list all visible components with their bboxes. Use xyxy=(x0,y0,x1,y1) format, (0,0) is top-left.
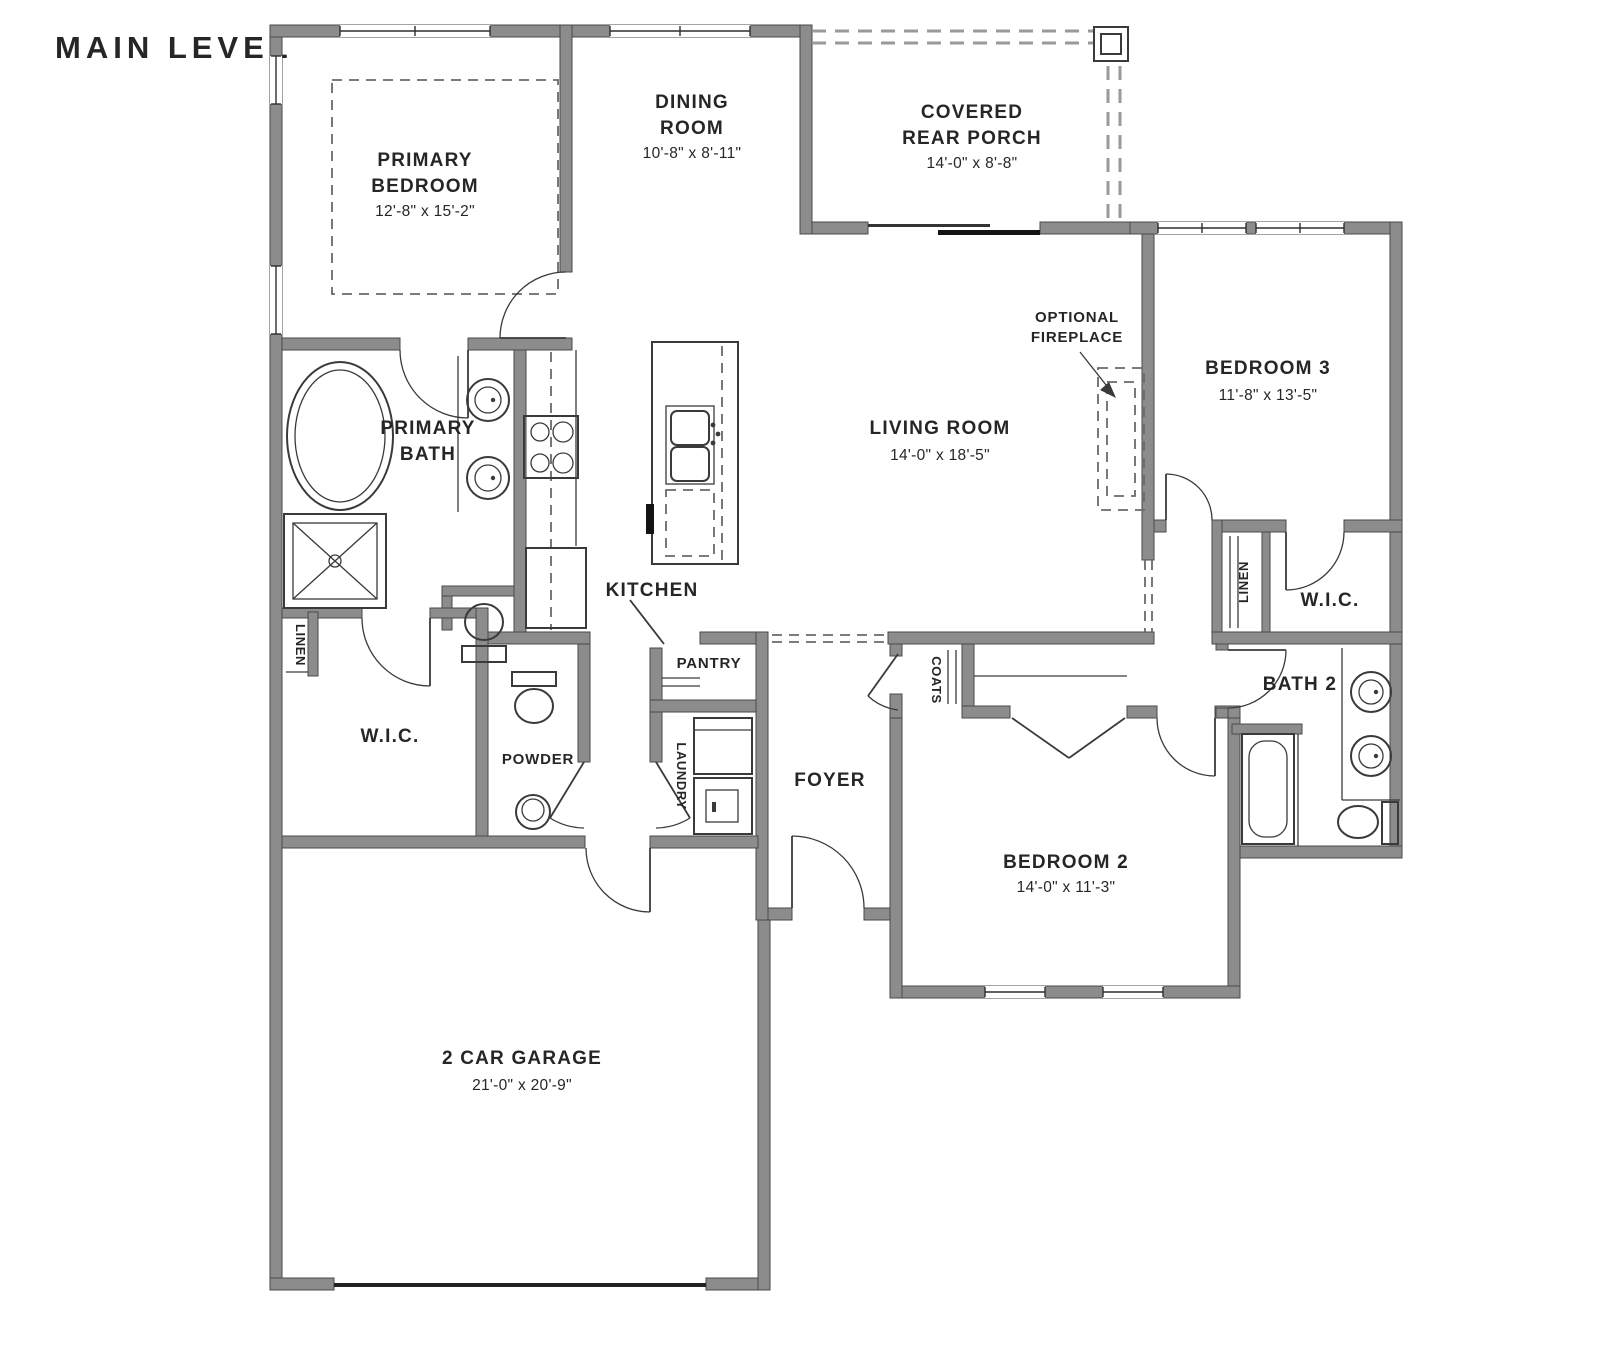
garage-door-line xyxy=(334,1283,706,1287)
soaking-tub xyxy=(287,362,393,510)
toilet-tank xyxy=(512,672,556,686)
bedroom2-label: BEDROOM 2 xyxy=(1003,852,1129,873)
floor-plan-page: MAIN LEVEL xyxy=(0,0,1600,1348)
shower xyxy=(284,514,386,608)
bedroom3-label: BEDROOM 3 xyxy=(1205,358,1331,379)
porch-post xyxy=(1094,27,1128,61)
kitchen-island xyxy=(646,342,738,564)
wic-bedroom3-label: W.I.C. xyxy=(1301,590,1360,611)
bathtub xyxy=(1242,734,1298,846)
refrigerator xyxy=(526,548,586,628)
svg-text:14'-0" x 11'-3": 14'-0" x 11'-3" xyxy=(1017,879,1116,896)
washer xyxy=(694,718,752,774)
svg-text:REAR PORCH: REAR PORCH xyxy=(902,128,1042,149)
floor-plan-canvas: MAIN LEVEL xyxy=(0,0,1600,1348)
svg-text:FIREPLACE: FIREPLACE xyxy=(1031,329,1123,346)
foyer-label: FOYER xyxy=(794,770,865,791)
toilet-bath2 xyxy=(1338,802,1398,844)
garage-label: 2 CAR GARAGE xyxy=(442,1048,602,1069)
kitchen-label: KITCHEN xyxy=(606,580,699,601)
sink-basin xyxy=(671,447,709,481)
sliding-door-panel xyxy=(938,230,1040,235)
svg-text:14'-0" x 18'-5": 14'-0" x 18'-5" xyxy=(890,447,990,464)
pantry-label: PANTRY xyxy=(677,655,742,672)
dishwasher xyxy=(666,490,714,556)
dining-room-label: DINING xyxy=(655,92,729,113)
page-title: MAIN LEVEL xyxy=(55,30,293,65)
pedestal-sink xyxy=(516,795,550,829)
fireplace-arrow xyxy=(1080,352,1116,398)
sliding-door-track xyxy=(868,224,990,227)
primary-bedroom-label: PRIMARY xyxy=(377,150,472,171)
laundry-label: LAUNDRY xyxy=(674,742,689,809)
optional-fireplace-label: OPTIONAL xyxy=(1035,309,1119,326)
dryer xyxy=(694,778,752,834)
primary-bath-label: PRIMARY xyxy=(380,418,475,439)
bath2-label: BATH 2 xyxy=(1263,674,1337,695)
svg-text:11'-8" x 13'-5": 11'-8" x 13'-5" xyxy=(1219,387,1318,404)
powder-label: POWDER xyxy=(502,751,574,768)
living-room-label: LIVING ROOM xyxy=(870,418,1011,439)
sink-basin xyxy=(671,411,709,445)
svg-text:10'-8" x 8'-11": 10'-8" x 8'-11" xyxy=(643,145,742,162)
svg-text:ROOM: ROOM xyxy=(660,118,724,139)
svg-text:12'-8" x 15'-2": 12'-8" x 15'-2" xyxy=(375,203,475,220)
svg-text:21'-0" x 20'-9": 21'-0" x 20'-9" xyxy=(472,1077,572,1094)
toilet-bowl xyxy=(515,689,553,723)
svg-text:BATH: BATH xyxy=(400,444,456,465)
linen-primary-label: LINEN xyxy=(293,624,308,666)
covered-rear-porch-label: COVERED xyxy=(921,102,1023,123)
svg-text:BEDROOM: BEDROOM xyxy=(371,176,479,197)
coats-label: COATS xyxy=(929,656,944,704)
porch-outline xyxy=(812,27,1128,222)
wic-primary-label: W.I.C. xyxy=(361,726,420,747)
svg-text:14'-0" x 8'-8": 14'-0" x 8'-8" xyxy=(927,155,1018,172)
linen-hall-label: LINEN xyxy=(1236,561,1251,603)
